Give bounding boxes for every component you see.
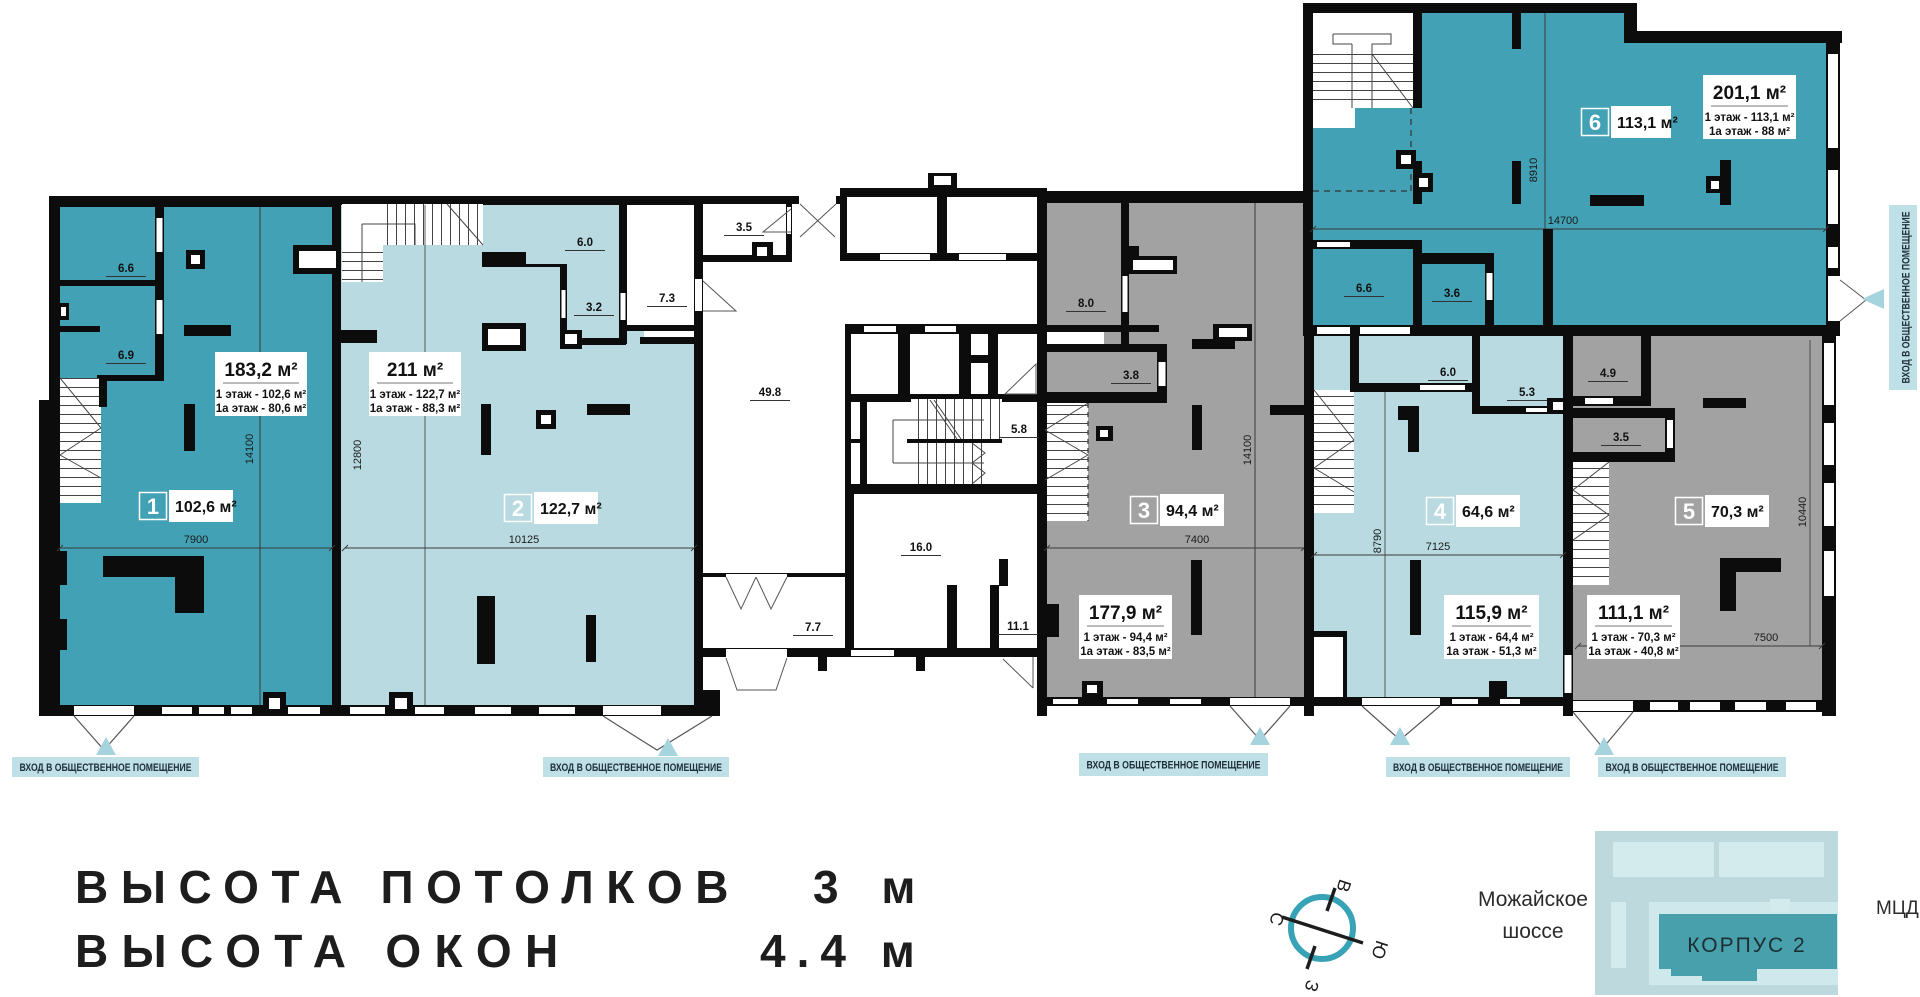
svg-text:1а этаж - 51,3 м²: 1а этаж - 51,3 м² xyxy=(1446,646,1537,658)
svg-text:5: 5 xyxy=(1683,499,1695,524)
svg-text:МЦД: МЦД xyxy=(1876,898,1919,919)
svg-text:8910: 8910 xyxy=(1528,158,1540,182)
svg-text:2: 2 xyxy=(512,496,524,521)
svg-text:1 этаж - 102,6 м²: 1 этаж - 102,6 м² xyxy=(216,389,307,401)
svg-text:6.0: 6.0 xyxy=(1440,367,1456,379)
svg-text:14700: 14700 xyxy=(1548,215,1579,227)
svg-text:201,1 м²: 201,1 м² xyxy=(1713,83,1786,104)
svg-text:6.6: 6.6 xyxy=(1356,283,1372,295)
svg-text:6.0: 6.0 xyxy=(577,237,593,249)
svg-text:1 этаж - 113,1 м²: 1 этаж - 113,1 м² xyxy=(1705,112,1795,124)
svg-text:16.0: 16.0 xyxy=(910,542,932,554)
svg-text:1а этаж - 88 м²: 1а этаж - 88 м² xyxy=(1709,126,1790,138)
svg-text:ВХОД В ОБЩЕСТВЕННОЕ ПОМЕЩЕНИЕ: ВХОД В ОБЩЕСТВЕННОЕ ПОМЕЩЕНИЕ xyxy=(1901,212,1913,384)
svg-text:ВЫСОТА ОКОН: ВЫСОТА ОКОН xyxy=(75,925,571,977)
svg-text:7.7: 7.7 xyxy=(805,622,821,634)
svg-text:177,9 м²: 177,9 м² xyxy=(1089,603,1162,624)
svg-text:ВХОД В ОБЩЕСТВЕННОЕ ПОМЕЩЕНИЕ: ВХОД В ОБЩЕСТВЕННОЕ ПОМЕЩЕНИЕ xyxy=(1393,762,1563,774)
svg-text:7125: 7125 xyxy=(1426,541,1450,553)
svg-text:1 этаж - 64,4 м²: 1 этаж - 64,4 м² xyxy=(1449,632,1533,644)
svg-text:14100: 14100 xyxy=(244,434,256,465)
svg-text:3.5: 3.5 xyxy=(736,222,753,234)
svg-text:5.8: 5.8 xyxy=(1011,424,1028,436)
svg-text:1 этаж - 70,3 м²: 1 этаж - 70,3 м² xyxy=(1591,632,1675,644)
svg-text:94,4 м²: 94,4 м² xyxy=(1166,503,1219,520)
svg-text:10440: 10440 xyxy=(1797,497,1809,528)
svg-text:1: 1 xyxy=(147,494,159,519)
svg-text:шоссе: шоссе xyxy=(1502,920,1563,943)
svg-text:4: 4 xyxy=(1434,499,1447,524)
svg-text:ВХОД В ОБЩЕСТВЕННОЕ ПОМЕЩЕНИЕ: ВХОД В ОБЩЕСТВЕННОЕ ПОМЕЩЕНИЕ xyxy=(550,762,722,774)
svg-text:4.9: 4.9 xyxy=(1600,368,1616,380)
svg-text:3 м: 3 м xyxy=(813,861,930,913)
svg-text:122,7 м²: 122,7 м² xyxy=(540,501,602,518)
svg-text:115,9 м²: 115,9 м² xyxy=(1455,603,1527,624)
svg-text:3.6: 3.6 xyxy=(1444,288,1460,300)
svg-text:4.4 м: 4.4 м xyxy=(760,925,926,977)
svg-text:Можайское: Можайское xyxy=(1478,888,1588,911)
svg-text:1 этаж - 122,7 м²: 1 этаж - 122,7 м² xyxy=(370,389,461,401)
svg-text:102,6 м²: 102,6 м² xyxy=(175,499,237,516)
svg-text:3: 3 xyxy=(1138,498,1150,523)
svg-text:7500: 7500 xyxy=(1754,632,1778,644)
svg-text:ВХОД В ОБЩЕСТВЕННОЕ ПОМЕЩЕНИЕ: ВХОД В ОБЩЕСТВЕННОЕ ПОМЕЩЕНИЕ xyxy=(1087,760,1261,772)
svg-text:ВХОД В ОБЩЕСТВЕННОЕ ПОМЕЩЕНИЕ: ВХОД В ОБЩЕСТВЕННОЕ ПОМЕЩЕНИЕ xyxy=(1606,762,1779,774)
svg-text:ВХОД В ОБЩЕСТВЕННОЕ ПОМЕЩЕНИЕ: ВХОД В ОБЩЕСТВЕННОЕ ПОМЕЩЕНИЕ xyxy=(20,762,192,774)
svg-text:8790: 8790 xyxy=(1372,529,1384,553)
svg-text:6.9: 6.9 xyxy=(118,350,134,362)
svg-text:64,6 м²: 64,6 м² xyxy=(1462,504,1515,521)
svg-text:11.1: 11.1 xyxy=(1007,621,1029,633)
svg-text:211 м²: 211 м² xyxy=(387,360,443,381)
svg-text:3.8: 3.8 xyxy=(1123,370,1140,382)
svg-text:8.0: 8.0 xyxy=(1078,298,1094,310)
svg-text:1а этаж - 40,8 м²: 1а этаж - 40,8 м² xyxy=(1588,646,1679,658)
svg-text:183,2 м²: 183,2 м² xyxy=(224,360,297,381)
svg-text:111,1 м²: 111,1 м² xyxy=(1598,603,1669,624)
svg-text:ВЫСОТА ПОТОЛКОВ: ВЫСОТА ПОТОЛКОВ xyxy=(75,861,741,913)
svg-text:КОРПУС 2: КОРПУС 2 xyxy=(1687,934,1806,957)
svg-text:49.8: 49.8 xyxy=(759,387,782,399)
svg-text:113,1 м²: 113,1 м² xyxy=(1617,115,1678,132)
svg-text:7900: 7900 xyxy=(184,534,208,546)
svg-text:10125: 10125 xyxy=(509,534,540,546)
svg-text:12800: 12800 xyxy=(352,440,364,471)
svg-text:1а этаж - 83,5 м²: 1а этаж - 83,5 м² xyxy=(1080,646,1171,658)
svg-text:70,3 м²: 70,3 м² xyxy=(1711,504,1764,521)
svg-text:7.3: 7.3 xyxy=(659,293,675,305)
svg-text:14100: 14100 xyxy=(1242,435,1254,466)
svg-text:1а этаж - 80,6 м²: 1а этаж - 80,6 м² xyxy=(216,403,307,415)
svg-text:3.2: 3.2 xyxy=(586,302,602,314)
svg-text:3.5: 3.5 xyxy=(1613,432,1630,444)
svg-text:5.3: 5.3 xyxy=(1519,387,1535,399)
svg-text:6: 6 xyxy=(1589,110,1601,135)
svg-text:6.6: 6.6 xyxy=(118,263,134,275)
svg-text:1 этаж - 94,4 м²: 1 этаж - 94,4 м² xyxy=(1083,632,1167,644)
svg-text:7400: 7400 xyxy=(1185,534,1209,546)
svg-text:1а этаж - 88,3 м²: 1а этаж - 88,3 м² xyxy=(370,403,461,415)
